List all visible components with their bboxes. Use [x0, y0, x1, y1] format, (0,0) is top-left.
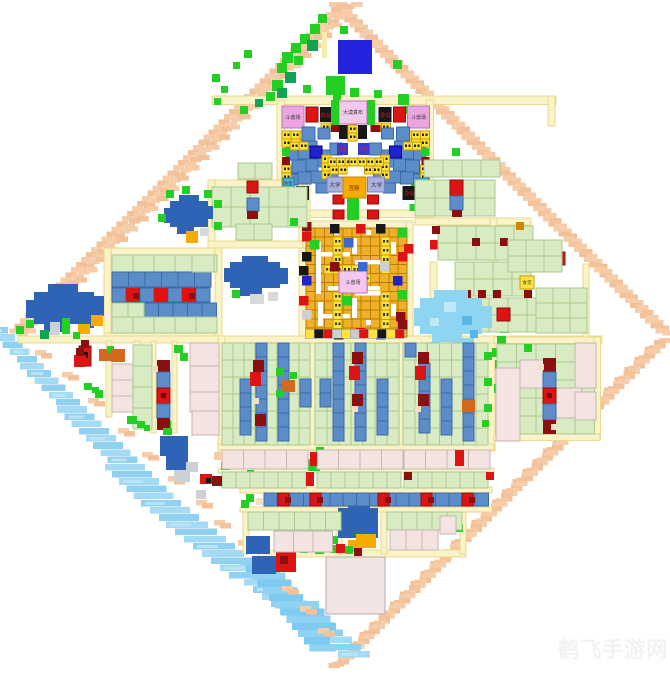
svg-text:食堂: 食堂	[523, 279, 532, 286]
svg-text:斗兽场: 斗兽场	[411, 114, 426, 121]
svg-text:大漠真布: 大漠真布	[343, 109, 363, 116]
svg-text:浴室: 浴室	[284, 180, 293, 187]
svg-text:办公: 办公	[380, 111, 392, 119]
svg-text:斗兽场: 斗兽场	[345, 279, 360, 286]
svg-text:大学: 大学	[329, 181, 341, 189]
svg-text:仓库: 仓库	[359, 146, 368, 153]
svg-text:仓库: 仓库	[338, 146, 347, 153]
svg-text:宫殿: 宫殿	[348, 184, 360, 192]
svg-text:大学: 大学	[371, 181, 383, 189]
svg-text:办公: 办公	[404, 190, 414, 197]
svg-text:斗兽场: 斗兽场	[285, 114, 300, 121]
svg-text:办公: 办公	[320, 111, 332, 119]
svg-text:鹤飞手游网: 鹤飞手游网	[558, 637, 668, 662]
